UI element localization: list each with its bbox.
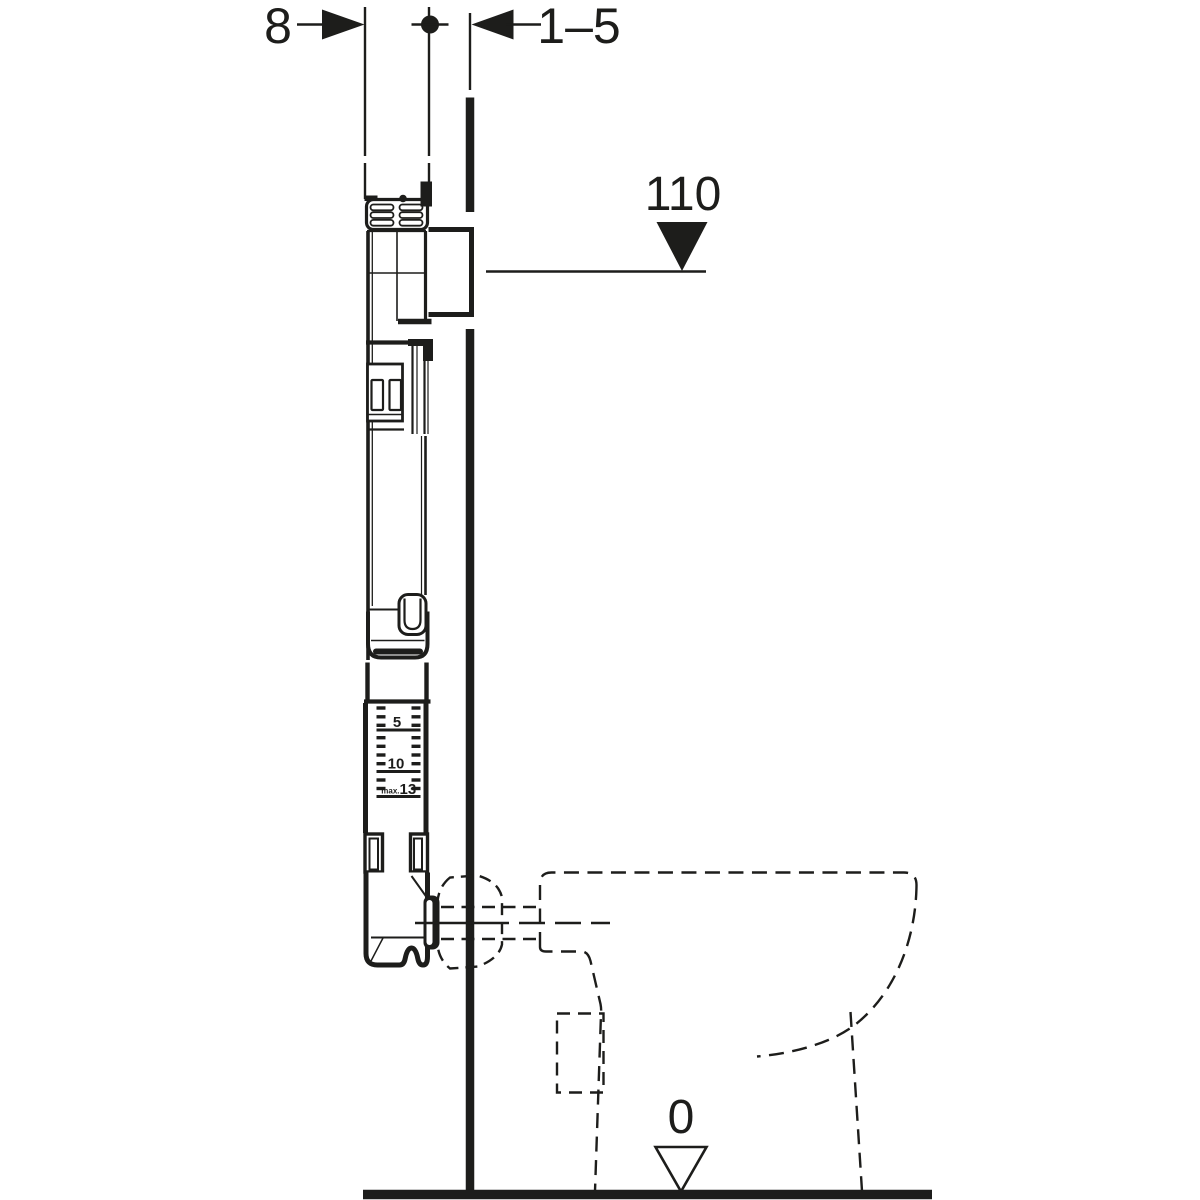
wall-bracket — [421, 182, 433, 207]
gauge-label-13: 13 — [400, 781, 417, 798]
outlet-connector — [415, 876, 610, 969]
floor-level-dimension: 0 — [656, 1091, 707, 1192]
concealed-cistern-installation-diagram: 5 10 max. 13 8 — [0, 0, 1200, 1200]
wall-gap-dimension: 1–5 — [472, 0, 621, 54]
level-marker-open-icon — [656, 1147, 707, 1192]
frame-depth-dimension: 8 — [264, 0, 365, 199]
pan-outlet-box — [557, 1014, 604, 1093]
anchor-reference — [412, 7, 449, 182]
frame-leg-left-slot — [370, 839, 379, 870]
diagram-page: 5 10 max. 13 8 — [0, 0, 1200, 1200]
dimension-label-wall-gap: 1–5 — [537, 0, 620, 54]
cap-top-knob — [399, 195, 407, 203]
level-marker-filled-icon — [657, 222, 708, 271]
dimension-annotations: 8 1–5 110 0 — [264, 0, 721, 1192]
dimension-label-floor-level: 0 — [668, 1091, 695, 1144]
height-110-dimension: 110 — [486, 168, 721, 272]
pan-rear-foot-line — [851, 1012, 863, 1191]
cistern-frame — [364, 182, 440, 966]
actuator-protection-box — [429, 230, 472, 315]
cap-left-step — [365, 196, 378, 202]
gauge-label-max-prefix: max. — [381, 787, 399, 796]
pan-rim-outline — [540, 873, 917, 948]
valve-bracket — [368, 364, 403, 421]
gauge-label-5: 5 — [393, 714, 401, 731]
frame-leg-right-slot — [414, 839, 422, 870]
pan-bowl-curve — [757, 885, 917, 1057]
dimension-label-height-110: 110 — [645, 168, 722, 221]
arrow-right-icon — [322, 10, 365, 40]
toilet-pan-outline — [540, 873, 917, 1192]
gauge-label-10: 10 — [388, 756, 405, 773]
depth-gauge: 5 10 max. 13 — [366, 703, 427, 833]
flush-pipe-bracket-block — [423, 339, 433, 361]
pan-front-profile — [540, 947, 601, 1191]
dimension-label-frame-depth: 8 — [264, 0, 292, 54]
